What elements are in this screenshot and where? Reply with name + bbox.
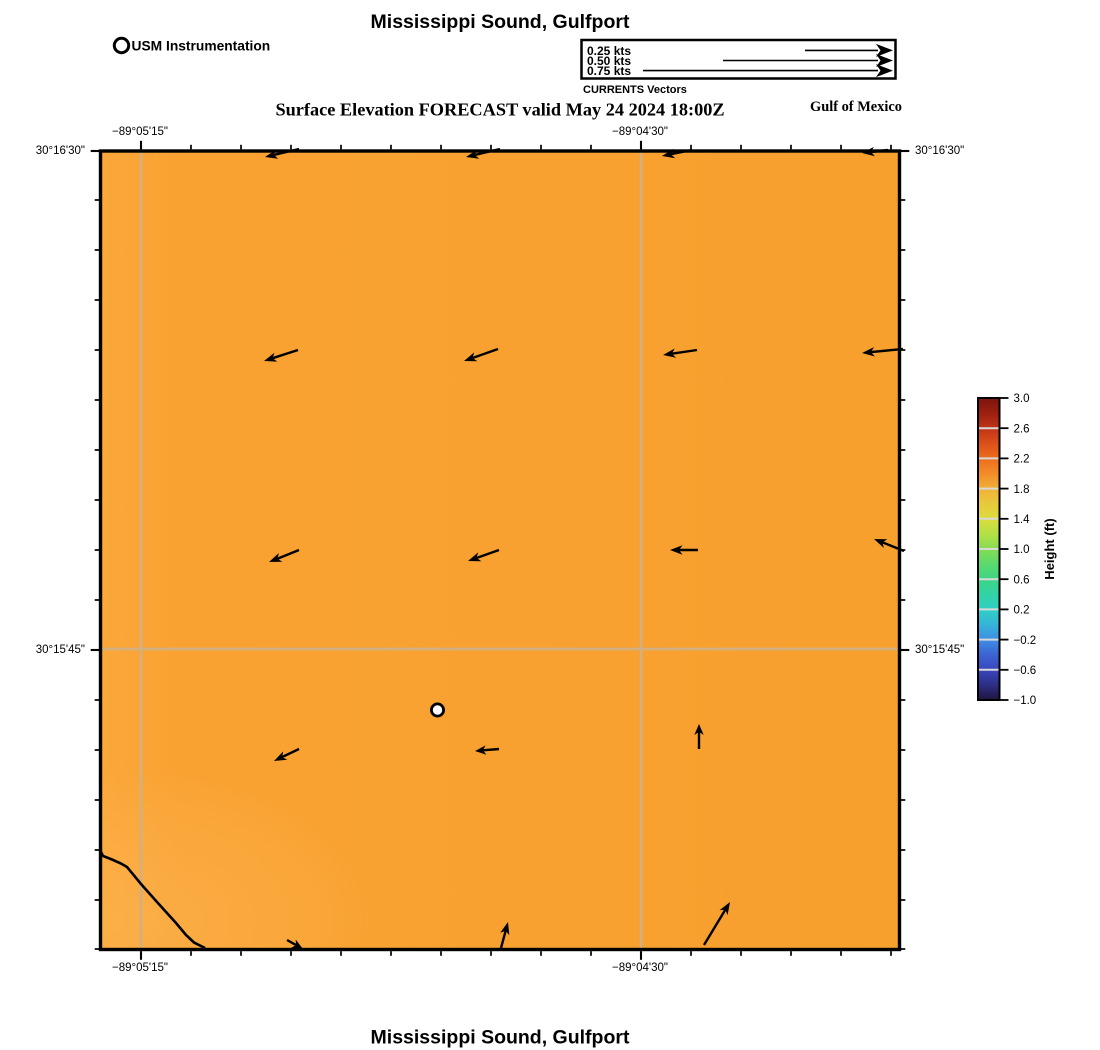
svg-text:USM Instrumentation: USM Instrumentation (132, 39, 271, 54)
svg-text:Mississippi Sound, Gulfport: Mississippi Sound, Gulfport (371, 1027, 630, 1049)
svg-text:0.6: 0.6 (1014, 574, 1030, 586)
svg-text:−89°05'15": −89°05'15" (112, 962, 168, 974)
svg-text:0.2: 0.2 (1014, 605, 1030, 617)
svg-text:−1.0: −1.0 (1014, 695, 1037, 707)
svg-text:Mississippi Sound, Gulfport: Mississippi Sound, Gulfport (371, 11, 630, 33)
svg-text:Gulf of Mexico: Gulf of Mexico (810, 99, 902, 115)
svg-text:Height (ft): Height (ft) (1042, 518, 1057, 579)
svg-text:−89°04'30": −89°04'30" (612, 962, 668, 974)
svg-text:1.8: 1.8 (1014, 484, 1030, 496)
svg-text:−0.2: −0.2 (1014, 635, 1037, 647)
svg-text:0.75 kts: 0.75 kts (587, 64, 631, 78)
svg-text:3.0: 3.0 (1014, 393, 1030, 405)
svg-text:2.6: 2.6 (1014, 423, 1030, 435)
svg-text:Surface Elevation FORECAST val: Surface Elevation FORECAST valid May 24 … (275, 100, 724, 120)
svg-text:30°16'30": 30°16'30" (36, 145, 85, 157)
svg-text:2.2: 2.2 (1014, 454, 1030, 466)
svg-text:1.0: 1.0 (1014, 544, 1030, 556)
svg-text:30°16'30": 30°16'30" (915, 145, 964, 157)
svg-text:CURRENTS Vectors: CURRENTS Vectors (583, 84, 687, 96)
svg-text:30°15'45": 30°15'45" (36, 644, 85, 656)
svg-text:−89°04'30": −89°04'30" (612, 126, 668, 138)
svg-text:−0.6: −0.6 (1014, 665, 1037, 677)
svg-text:−89°05'15": −89°05'15" (112, 126, 168, 138)
svg-text:1.4: 1.4 (1014, 514, 1031, 526)
svg-text:30°15'45": 30°15'45" (915, 644, 964, 656)
